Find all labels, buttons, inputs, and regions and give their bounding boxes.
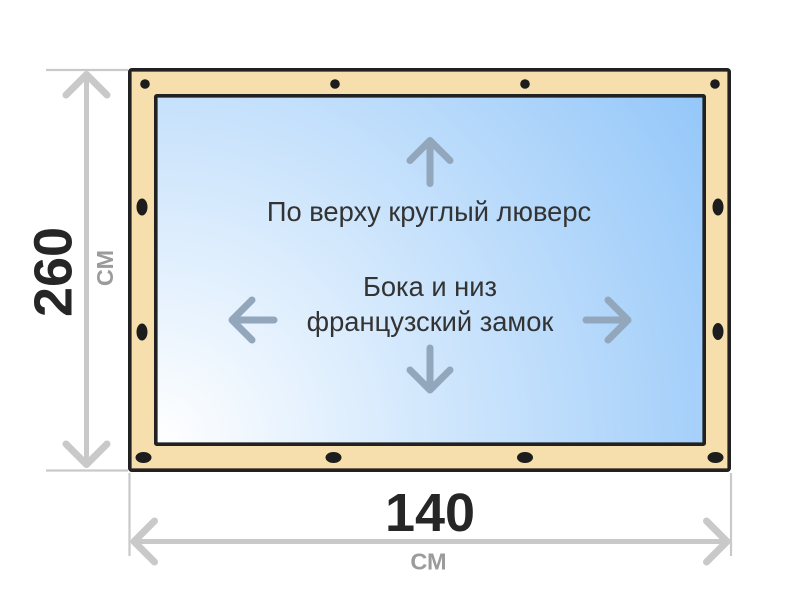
svg-text:140: 140 xyxy=(385,483,475,543)
svg-text:СМ: СМ xyxy=(410,549,446,575)
svg-text:По верху круглый люверс: По верху круглый люверс xyxy=(267,196,591,227)
svg-text:260: 260 xyxy=(24,227,84,317)
svg-text:СМ: СМ xyxy=(92,250,118,286)
svg-text:французский замок: французский замок xyxy=(307,306,555,337)
svg-text:Бока и низ: Бока и низ xyxy=(363,271,497,302)
